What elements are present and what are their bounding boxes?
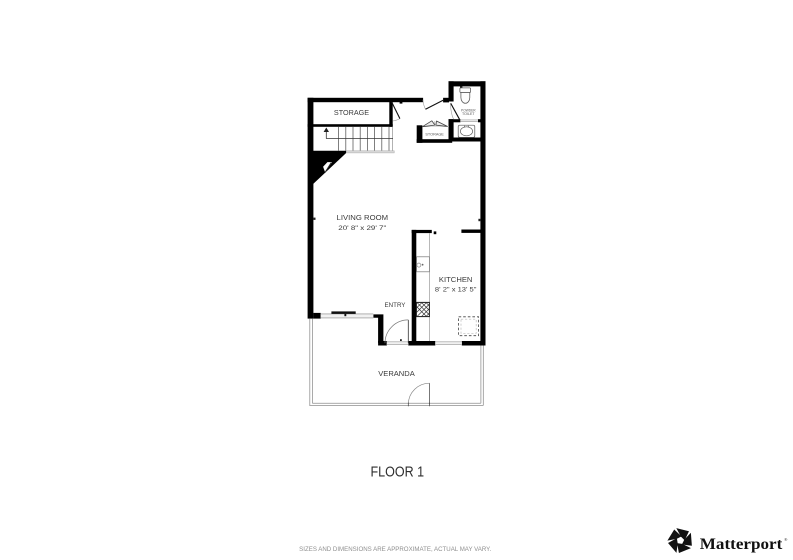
svg-text:STORAGE: STORAGE xyxy=(425,133,444,137)
svg-text:SIZES AND DIMENSIONS ARE APPRO: SIZES AND DIMENSIONS ARE APPROXIMATE, AC… xyxy=(299,547,491,553)
svg-text:FLOOR 1: FLOOR 1 xyxy=(371,464,425,481)
svg-text:LIVING ROOM: LIVING ROOM xyxy=(337,215,389,222)
svg-text:20' 8" x 29' 7": 20' 8" x 29' 7" xyxy=(338,225,386,232)
svg-text:Matterport: Matterport xyxy=(700,536,783,553)
svg-text:8' 2" x 13' 5": 8' 2" x 13' 5" xyxy=(435,287,477,294)
svg-text:ENTRY: ENTRY xyxy=(385,302,406,309)
svg-text:STORAGE: STORAGE xyxy=(334,110,370,117)
svg-text:KITCHEN: KITCHEN xyxy=(439,277,473,284)
svg-text:®: ® xyxy=(784,537,788,542)
svg-text:TOILET: TOILET xyxy=(462,112,475,116)
svg-text:VERANDA: VERANDA xyxy=(378,371,415,378)
